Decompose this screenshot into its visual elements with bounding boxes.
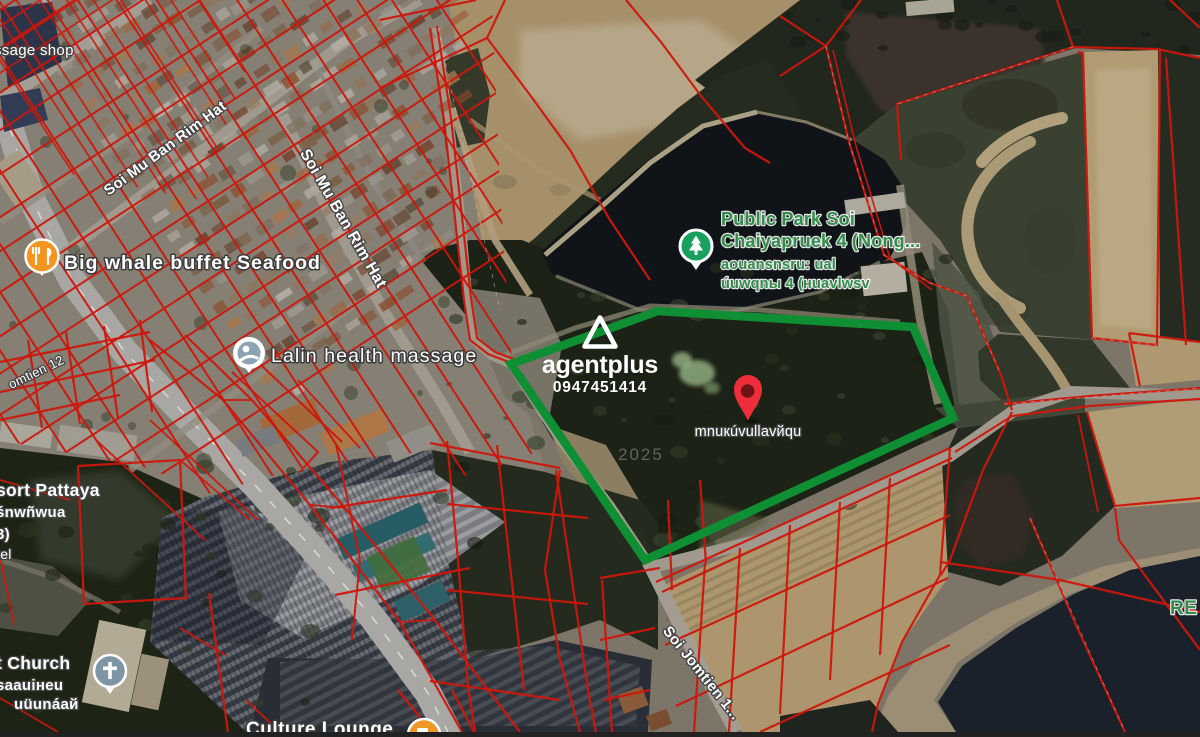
svg-text:uüunáaй: uüunáaй <box>14 696 79 713</box>
svg-text:śnwñwua: śnwñwua <box>0 504 66 521</box>
svg-text:Chaiyapruek 4 (Nong...: Chaiyapruek 4 (Nong... <box>721 231 920 251</box>
svg-text:2025: 2025 <box>618 445 664 464</box>
svg-text:agentplus: agentplus <box>542 351 658 379</box>
svg-text:aouansnsru: ual: aouansnsru: ual <box>721 257 836 273</box>
svg-text:Lalin health massage: Lalin health massage <box>271 345 477 367</box>
svg-text:sort Pattaya: sort Pattaya <box>0 480 100 500</box>
svg-text:saauiнeu: saauiнeu <box>0 677 63 694</box>
svg-text:RE: RE <box>1170 598 1197 619</box>
svg-text:mnuкúvullavйqu: mnuкúvullavйqu <box>695 424 802 440</box>
svg-text:Culture Lounge: Culture Lounge <box>246 719 393 732</box>
svg-text:úuwqnы 4 (нuavlwsv: úuwqnы 4 (нuavlwsv <box>721 276 870 292</box>
svg-text:0947451414: 0947451414 <box>553 379 647 396</box>
svg-text:t Church: t Church <box>0 653 70 673</box>
svg-text:ssage shop: ssage shop <box>0 42 74 59</box>
svg-text:tel: tel <box>0 546 12 562</box>
svg-text:3): 3) <box>0 526 10 543</box>
svg-text:Public Park Soi: Public Park Soi <box>721 209 855 229</box>
svg-text:Big whale buffet Seafood: Big whale buffet Seafood <box>64 252 321 274</box>
